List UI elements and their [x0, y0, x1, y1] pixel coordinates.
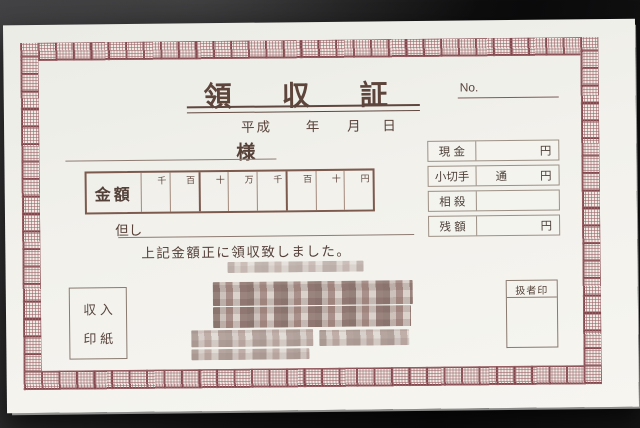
photo-desk-background: 領収証 No. 平成 年 月 日 様 金額 千 百 十 万 千 百 十 円 但し…: [0, 0, 640, 428]
redacted-issuer-line-small: [227, 261, 363, 273]
breakdown-currency: 円: [541, 217, 553, 233]
date-line: 平成 年 月 日: [241, 114, 396, 136]
breakdown-label: 現 金: [428, 141, 476, 161]
digit-header: 十: [216, 172, 228, 186]
breakdown-value-cell: [477, 191, 559, 211]
breakdown-currency: 円: [540, 142, 552, 158]
amount-digit-cell: 十: [315, 171, 344, 210]
digit-header: 百: [303, 171, 315, 185]
amount-digit-cell: 万: [228, 172, 257, 211]
day-suffix: 日: [382, 118, 396, 133]
amount-grid: 金額 千 百 十 万 千 百 十 円: [85, 168, 375, 214]
breakdown-value-cell: 通 円: [476, 166, 558, 186]
breakdown-row-balance: 残 額 円: [428, 214, 560, 236]
breakdown-row-cash: 現 金 円: [427, 140, 559, 162]
handler-seal-label: 扱者印: [507, 281, 557, 299]
digit-header: 円: [361, 170, 373, 184]
redacted-issuer-address-a: [191, 329, 313, 347]
redacted-issuer-name-line1: [213, 280, 413, 306]
revenue-stamp-line2: 印 紙: [83, 328, 113, 347]
receipt-statement: 上記金額正に領収致しました。: [141, 240, 351, 262]
breakdown-label: 残 額: [429, 216, 477, 236]
ornament-border-bottom: [24, 365, 602, 390]
breakdown-unit: 通: [496, 168, 508, 184]
amount-digit-cell: 円: [344, 170, 373, 209]
breakdown-row-offset: 相 殺: [428, 189, 560, 211]
breakdown-currency: 円: [540, 167, 552, 183]
proviso-write-line: [118, 234, 414, 238]
ornament-border-left: [20, 43, 42, 390]
receipt-number-field: No.: [458, 78, 559, 99]
amount-digit-cell: 百: [169, 172, 198, 211]
digit-header: 百: [186, 172, 198, 186]
month-suffix: 月: [347, 119, 361, 134]
handler-seal-box: 扱者印: [506, 280, 559, 349]
revenue-stamp-box: 収 入 印 紙: [69, 287, 128, 360]
breakdown-label: 小切手: [428, 166, 476, 186]
payment-breakdown-table: 現 金 円 小切手 通 円 相 殺: [427, 140, 560, 241]
receipt-number-label: No.: [458, 80, 479, 94]
amount-digit-cell: 十: [198, 172, 228, 211]
revenue-stamp-line1: 収 入: [83, 299, 113, 318]
breakdown-label: 相 殺: [429, 191, 477, 211]
breakdown-value-cell: 円: [476, 141, 558, 161]
ornament-border-right: [580, 37, 602, 384]
amount-label-cell: 金額: [87, 173, 141, 213]
digit-header: 万: [245, 172, 257, 186]
breakdown-row-check: 小切手 通 円: [427, 164, 559, 186]
addressee-suffix: 様: [236, 138, 255, 165]
era-label: 平成: [241, 120, 272, 135]
redacted-issuer-phone: [191, 348, 309, 360]
receipt-paper: 領収証 No. 平成 年 月 日 様 金額 千 百 十 万 千 百 十 円 但し…: [3, 19, 639, 414]
breakdown-value-cell: 円: [477, 216, 559, 236]
digit-header: 十: [332, 171, 344, 185]
redacted-issuer-address-b: [319, 329, 409, 346]
redacted-issuer-name-line2: [213, 305, 411, 328]
digit-header: 千: [157, 173, 169, 187]
ornament-border-top: [20, 37, 598, 61]
year-suffix: 年: [306, 119, 320, 134]
amount-digit-cell: 千: [141, 173, 170, 212]
amount-digit-cell: 百: [285, 171, 315, 210]
digit-header: 千: [273, 171, 285, 185]
amount-digit-cell: 千: [257, 171, 286, 210]
